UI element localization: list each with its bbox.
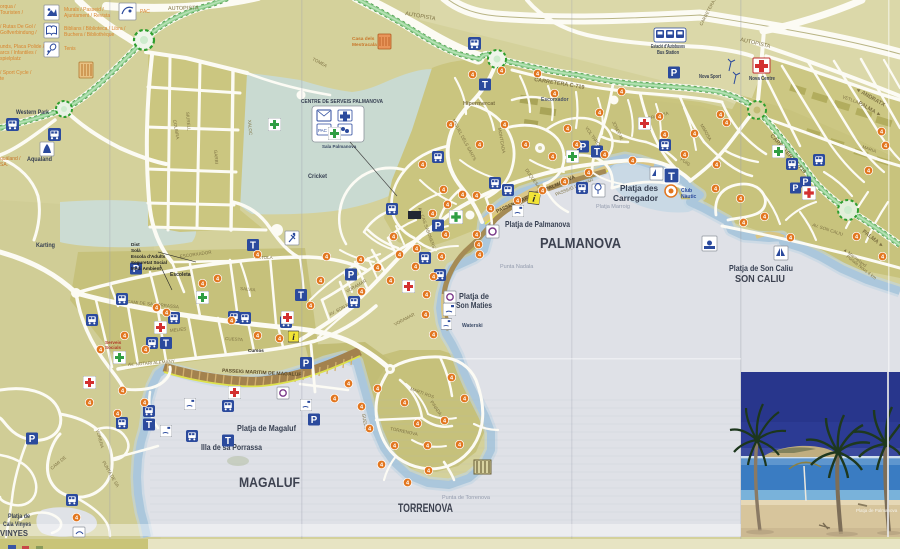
svg-text:Golfverbindung /: Golfverbindung / xyxy=(0,30,37,36)
svg-text:Son Maties: Son Maties xyxy=(456,300,492,310)
svg-text:Platja des: Platja des xyxy=(620,183,658,193)
svg-text:Escola d'Adults: Escola d'Adults xyxy=(131,254,166,259)
svg-text:Sala Palmanova: Sala Palmanova xyxy=(322,144,357,149)
svg-text:Platja de Magaluf: Platja de Magaluf xyxy=(237,423,296,433)
svg-text:Touristen /: Touristen / xyxy=(0,10,24,16)
svg-text:Carregador: Carregador xyxy=(613,193,659,203)
svg-text:Medi Ambient: Medi Ambient xyxy=(131,266,161,271)
svg-text:Karting: Karting xyxy=(36,242,55,249)
svg-text:Platja de Palmanova: Platja de Palmanova xyxy=(505,219,570,229)
svg-text:Cricket: Cricket xyxy=(308,173,328,180)
svg-text:PALMANOVA: PALMANOVA xyxy=(540,235,621,252)
svg-text:SON CALIU: SON CALIU xyxy=(735,273,785,285)
svg-text:CENTRE DE SERVEIS PALMANOVA: CENTRE DE SERVEIS PALMANOVA xyxy=(301,99,383,105)
svg-text:VINYES: VINYES xyxy=(0,528,28,538)
svg-text:Mestracala: Mestracala xyxy=(352,42,377,48)
svg-text:Waterski: Waterski xyxy=(462,323,483,329)
svg-text:Bus Station: Bus Station xyxy=(657,50,679,56)
svg-text:TORRENOVA: TORRENOVA xyxy=(398,503,453,515)
svg-text:AUTOPISTA: AUTOPISTA xyxy=(168,5,199,12)
svg-text:spielplatz: spielplatz xyxy=(0,56,21,62)
svg-text:Casa dels: Casa dels xyxy=(352,36,375,42)
svg-text:Dist: Dist xyxy=(131,242,140,247)
svg-text:Buchera / Bibliothèque: Buchera / Bibliothèque xyxy=(64,32,115,38)
svg-text:SA.: SA. xyxy=(0,162,8,168)
svg-text:Socials: Socials xyxy=(105,345,122,350)
svg-text:Escoleta: Escoleta xyxy=(170,272,191,278)
svg-text:Nova Sport: Nova Sport xyxy=(699,74,721,80)
svg-text:Cursos: Cursos xyxy=(248,348,264,353)
svg-text:Platja Marroig: Platja Marroig xyxy=(596,204,630,210)
svg-text:T: T xyxy=(668,171,675,183)
svg-text:Western Park: Western Park xyxy=(16,109,49,116)
svg-text:PAC: PAC xyxy=(140,9,150,15)
svg-text:Platja de: Platja de xyxy=(8,514,31,520)
svg-text:Platja de Son Caliu: Platja de Son Caliu xyxy=(729,263,793,273)
svg-text:Seguretat Social: Seguretat Social xyxy=(131,260,167,265)
svg-text:Nova Centre: Nova Centre xyxy=(749,76,775,82)
svg-text:Ajuntament / Revista: Ajuntament / Revista xyxy=(64,13,110,19)
svg-text:Tenis: Tenis xyxy=(64,46,76,52)
svg-text:Platja de Palmanova: Platja de Palmanova xyxy=(856,508,898,513)
svg-text:Hipermercat: Hipermercat xyxy=(463,101,495,107)
svg-text:Punta de Torrenova: Punta de Torrenova xyxy=(442,495,491,501)
svg-text:Punta Nadala: Punta Nadala xyxy=(500,264,534,270)
svg-text:/ Sport Cycle /: / Sport Cycle / xyxy=(0,70,32,76)
svg-text:Aqualand: Aqualand xyxy=(27,156,52,163)
svg-text:MAGALUF: MAGALUF xyxy=(239,474,300,490)
svg-text:PAC: PAC xyxy=(318,128,328,133)
svg-text:Nàutic: Nàutic xyxy=(681,194,697,200)
svg-text:Solà: Solà xyxy=(131,248,141,253)
svg-text:te: te xyxy=(0,76,4,82)
